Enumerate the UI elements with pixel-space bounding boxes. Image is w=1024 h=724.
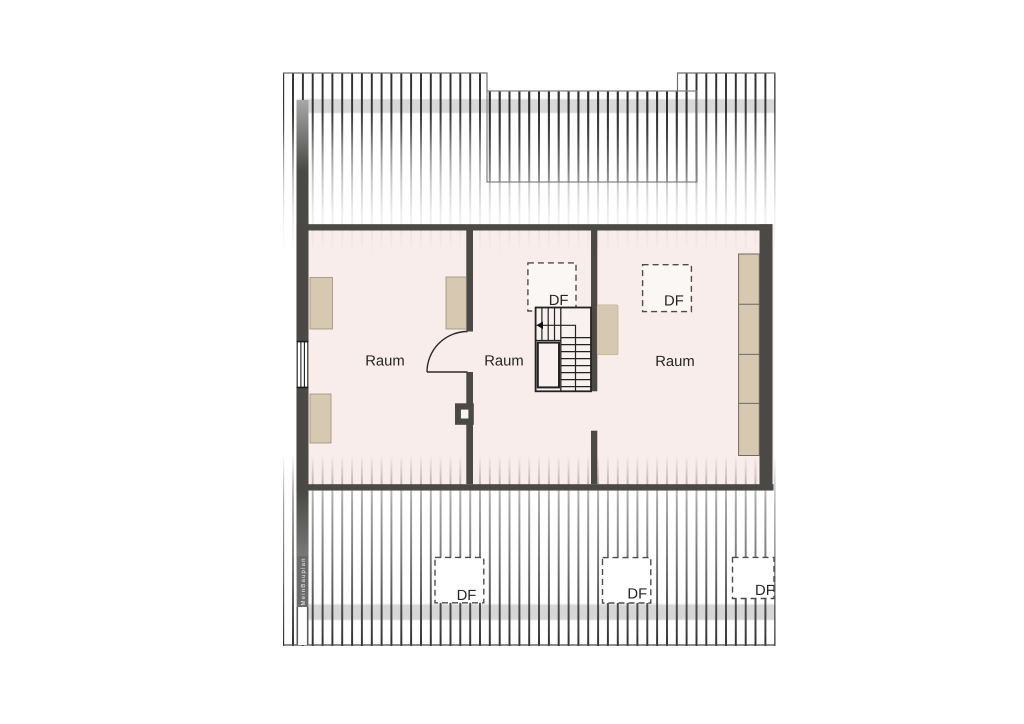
svg-text:DF: DF: [755, 583, 775, 599]
svg-text:Raum: Raum: [365, 353, 405, 369]
svg-text:DF: DF: [664, 293, 684, 309]
svg-text:Raum: Raum: [655, 354, 695, 370]
svg-text:DF: DF: [549, 293, 569, 309]
svg-text:MeinBauplan: MeinBauplan: [300, 559, 307, 606]
svg-text:DF: DF: [457, 588, 477, 604]
svg-text:Raum: Raum: [484, 353, 524, 369]
svg-text:DF: DF: [627, 586, 647, 602]
